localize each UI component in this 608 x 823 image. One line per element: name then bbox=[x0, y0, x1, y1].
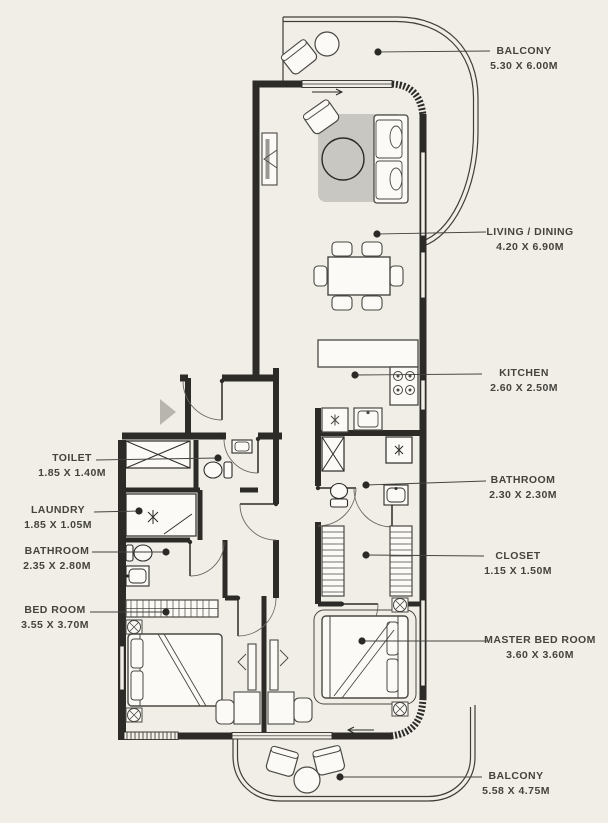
bedroom-wardrobe bbox=[126, 600, 218, 617]
furniture-balcony-top bbox=[280, 32, 339, 76]
label-bathroom: BATHROOM 2.35 X 2.80M bbox=[23, 544, 91, 574]
dining-table bbox=[328, 257, 390, 295]
slider-arrow-top bbox=[312, 89, 342, 95]
label-laundry-dims: 1.85 X 1.05M bbox=[24, 518, 92, 533]
label-bathroom-2-dims: 2.30 X 2.30M bbox=[489, 488, 557, 503]
desk-chair bbox=[294, 698, 312, 722]
label-master-bedroom: MASTER BED ROOM 3.60 X 3.60M bbox=[484, 633, 596, 663]
balcony-table bbox=[294, 767, 320, 793]
furniture-bedroom bbox=[126, 600, 312, 724]
master-nightstand-lamp bbox=[392, 702, 408, 716]
bathroom-wc bbox=[126, 545, 152, 561]
label-kitchen-dims: 2.60 X 2.50M bbox=[490, 381, 558, 396]
bathroom-left-fixtures bbox=[126, 545, 152, 586]
balcony-chair bbox=[280, 39, 318, 76]
label-toilet: TOILET 1.85 X 1.40M bbox=[38, 451, 106, 481]
balcony-chair bbox=[265, 746, 299, 778]
label-laundry: LAUNDRY 1.85 X 1.05M bbox=[24, 503, 92, 533]
label-balcony-bottom-dims: 5.58 X 4.75M bbox=[482, 784, 550, 799]
label-closet-dims: 1.15 X 1.50M bbox=[484, 564, 552, 579]
tv-console bbox=[262, 133, 277, 185]
nightstand-lamp bbox=[126, 708, 142, 722]
kitchen-fixtures bbox=[318, 340, 418, 432]
label-balcony-bottom-name: BALCONY bbox=[482, 769, 550, 784]
washbasin bbox=[384, 485, 408, 505]
label-balcony-top-dims: 5.30 X 6.00M bbox=[490, 59, 558, 74]
label-toilet-dims: 1.85 X 1.40M bbox=[38, 466, 106, 481]
label-master-bedroom-dims: 3.60 X 3.60M bbox=[484, 648, 596, 663]
label-closet: CLOSET 1.15 X 1.50M bbox=[484, 549, 552, 579]
balcony-table bbox=[315, 32, 339, 56]
hatched-window bbox=[124, 732, 178, 740]
label-toilet-name: TOILET bbox=[38, 451, 106, 466]
nightstand-lamp bbox=[126, 620, 142, 634]
label-living-dining: LIVING / DINING 4.20 X 6.90M bbox=[486, 225, 573, 255]
furniture-master-bedroom bbox=[314, 598, 416, 716]
wc-toilet bbox=[331, 484, 348, 508]
label-bathroom-2-name: BATHROOM bbox=[489, 473, 557, 488]
label-closet-name: CLOSET bbox=[484, 549, 552, 564]
label-bathroom-dims: 2.35 X 2.80M bbox=[23, 559, 91, 574]
slider-arrow-bottom bbox=[348, 727, 374, 733]
label-bedroom-name: BED ROOM bbox=[21, 603, 89, 618]
bathroom-basin bbox=[126, 566, 149, 586]
label-living-dining-dims: 4.20 X 6.90M bbox=[486, 240, 573, 255]
label-living-dining-name: LIVING / DINING bbox=[486, 225, 573, 240]
floor-plan-drawing bbox=[0, 0, 608, 823]
master-nightstand-lamp bbox=[392, 598, 408, 612]
stove bbox=[390, 367, 418, 405]
shaft-x-box bbox=[322, 437, 344, 471]
label-bathroom-name: BATHROOM bbox=[23, 544, 91, 559]
furniture-dining bbox=[314, 242, 403, 310]
furniture-balcony-bottom bbox=[265, 745, 345, 793]
bathroom-right-fixtures bbox=[322, 437, 412, 507]
label-bedroom: BED ROOM 3.55 X 3.70M bbox=[21, 603, 89, 633]
coffee-table bbox=[322, 138, 364, 180]
sofa bbox=[374, 115, 408, 203]
toilet-wc bbox=[204, 462, 232, 478]
shaft-x-box-left bbox=[126, 441, 190, 468]
label-balcony-top: BALCONY 5.30 X 6.00M bbox=[490, 44, 558, 74]
label-kitchen: KITCHEN 2.60 X 2.50M bbox=[490, 366, 558, 396]
bed bbox=[128, 634, 222, 706]
entry-arrow-icon bbox=[160, 399, 176, 425]
label-balcony-top-name: BALCONY bbox=[490, 44, 558, 59]
desk-right bbox=[268, 640, 312, 724]
closet-wardrobes bbox=[322, 526, 412, 596]
label-bedroom-dims: 3.55 X 3.70M bbox=[21, 618, 89, 633]
desk-chair bbox=[216, 700, 234, 724]
label-laundry-name: LAUNDRY bbox=[24, 503, 92, 518]
furniture-living bbox=[262, 99, 408, 203]
floor-plan: BALCONY 5.30 X 6.00M LIVING / DINING 4.2… bbox=[0, 0, 608, 823]
label-kitchen-name: KITCHEN bbox=[490, 366, 558, 381]
label-master-bedroom-name: MASTER BED ROOM bbox=[484, 633, 596, 648]
label-bathroom-2: BATHROOM 2.30 X 2.30M bbox=[489, 473, 557, 503]
master-bed bbox=[322, 616, 408, 698]
laundry-fixtures bbox=[126, 494, 196, 536]
label-balcony-bottom: BALCONY 5.58 X 4.75M bbox=[482, 769, 550, 799]
